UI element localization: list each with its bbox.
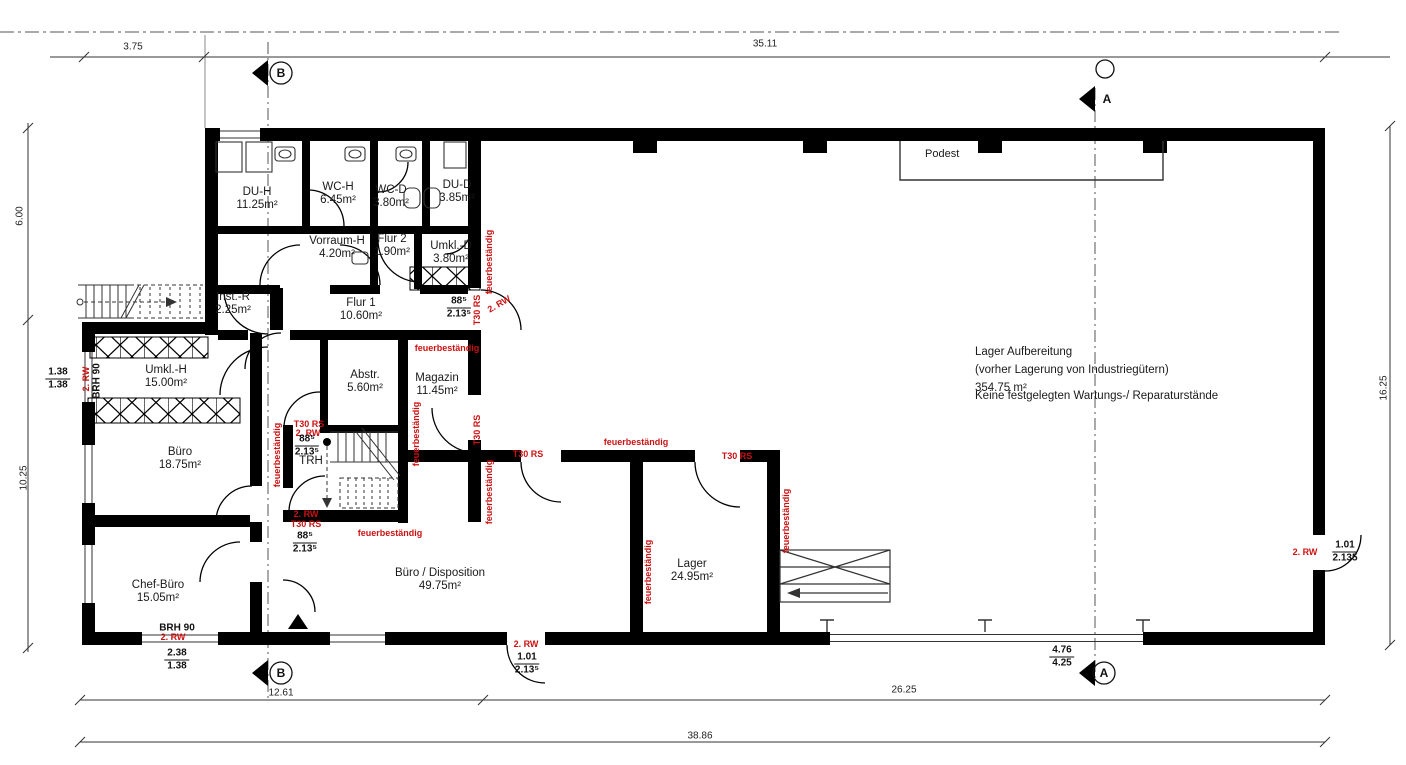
room-label-magazin: Magazin xyxy=(415,372,458,384)
dim-fraction-door-flur1: 88⁵2.13⁵ xyxy=(447,296,471,321)
room-label-flur-1: Flur 1 xyxy=(346,297,375,309)
room-label-du-h: DU-H xyxy=(243,186,272,198)
room-label-wc-h: WC-H xyxy=(322,181,353,193)
room-area-wc-d: 3.80m² xyxy=(373,197,409,209)
podest-outline xyxy=(900,141,1163,180)
floor-plan: Lager Aufbereitung (vorher Lagerung von … xyxy=(0,0,1406,765)
annotation-feuerbest-ndig: feuerbeständig xyxy=(781,489,791,554)
exterior-stair xyxy=(77,285,203,318)
label-brh-90: BRH 90 xyxy=(92,363,103,399)
annotation-feuerbest-ndig: feuerbeständig xyxy=(604,437,669,447)
annotation-feuerbest-ndig: feuerbeständig xyxy=(484,230,494,295)
room-area-b-ro-disposition: 49.75m² xyxy=(419,580,461,592)
room-label-wc-d: WC-D xyxy=(375,184,406,196)
room-area-lager: 24.95m² xyxy=(671,571,713,583)
annotation-feuerbest-ndig: feuerbeständig xyxy=(358,528,423,538)
annotation-2-rw: 2. RW xyxy=(1293,547,1318,557)
room-label-abstr: Abstr. xyxy=(350,369,379,381)
room-area-du-h: 11.25m² xyxy=(236,199,277,211)
room-area-flur-2: 1.90m² xyxy=(374,246,410,258)
room-area-b-ro: 18.75m² xyxy=(159,459,201,471)
room-area-flur-1: 10.60m² xyxy=(340,310,382,322)
podest-label: Podest xyxy=(925,148,959,160)
dim-fraction-dim-window-left: 1.381.38 xyxy=(45,367,70,392)
ramp xyxy=(780,550,890,602)
dimension-6-00: 6.00 xyxy=(15,206,26,225)
dim-fraction-door-entrance: 1.012.13⁵ xyxy=(514,652,539,677)
annotation-t30-rs: T30 RS xyxy=(722,451,753,461)
gate-posts xyxy=(820,620,1150,632)
label-brh-90: BRH 90 xyxy=(159,623,195,634)
room-label-du-d: DU-D xyxy=(443,179,472,191)
room-label-inst-r: Inst.-R xyxy=(216,291,250,303)
annotation-feuerbest-ndig: feuerbeständig xyxy=(484,460,494,525)
floorplan-drawing xyxy=(0,0,1406,765)
dimension-38-86: 38.86 xyxy=(687,731,712,742)
room-label-lager: Lager xyxy=(677,558,706,570)
dim-fraction-door-trh-top: 88⁵2.13⁵ xyxy=(295,434,319,459)
room-label-b-ro-disposition: Büro / Disposition xyxy=(395,567,485,579)
dimension-10-25: 10.25 xyxy=(19,465,30,490)
section-letter-b-top: B xyxy=(277,66,286,80)
room-area-wc-h: 6.45m² xyxy=(320,194,356,206)
annotation-feuerbest-ndig: feuerbeständig xyxy=(411,402,421,467)
annotation-t30-rs: T30 RS xyxy=(513,449,544,459)
room-area-du-d: 3.85m² xyxy=(439,192,475,204)
room-label-b-ro: Büro xyxy=(168,446,192,458)
section-letter-a-top: A xyxy=(1103,92,1112,106)
room-label-vorraum-h: Vorraum-H xyxy=(309,235,365,247)
room-label-chef-b-ro: Chef-Büro xyxy=(132,579,184,591)
annotation-t30-rs: T30 RS xyxy=(472,415,482,446)
section-letter-b-bottom: B xyxy=(277,666,286,680)
hall-note: Keine festgelegten Wartungs-/ Reparaturs… xyxy=(975,390,1218,402)
dimension-26-25: 26.25 xyxy=(891,685,916,696)
dim-fraction-door-trh-bottom: 88⁵2.13⁵ xyxy=(293,531,317,556)
room-label-umkl-h: Umkl.-H xyxy=(145,364,187,376)
room-area-magazin: 11.45m² xyxy=(416,385,457,397)
annotation-t30-rs: T30 RS xyxy=(472,295,482,326)
dimension-35-11: 35.11 xyxy=(753,39,777,50)
room-label-umkl-d: Umkl.-D xyxy=(430,240,472,252)
room-area-chef-b-ro: 15.05m² xyxy=(137,592,179,604)
trh-stair xyxy=(322,428,400,508)
annotation-feuerbest-ndig: feuerbeständig xyxy=(272,423,282,488)
annotation-feuerbest-ndig: feuerbeständig xyxy=(415,343,480,353)
room-label-flur-2: Flur 2 xyxy=(377,233,406,245)
section-letter-a-bottom: A xyxy=(1100,666,1109,680)
dimension-3-75: 3.75 xyxy=(123,42,142,53)
dimension-16-25: 16.25 xyxy=(1379,375,1390,400)
annotation-2-rw: 2. RW xyxy=(81,367,91,392)
dim-fraction-dim-window-chef: 2.381.38 xyxy=(164,648,189,673)
annotation-2-rw: 2. RW xyxy=(161,632,186,642)
room-area-umkl-d: 3.80m² xyxy=(433,253,469,265)
dim-fraction-gate-opening: 4.764.25 xyxy=(1049,645,1074,670)
hall-label-line1: Lager Aufbereitung xyxy=(975,344,1169,362)
annotation-2-rw: 2. RW xyxy=(294,509,319,519)
dimension-12-61: 12.61 xyxy=(268,688,293,699)
room-area-inst-r: 2.25m² xyxy=(215,304,251,316)
room-area-abstr: 5.60m² xyxy=(347,382,383,394)
hall-label-line2: (vorher Lagerung von Industriegütern) xyxy=(975,362,1169,380)
room-area-vorraum-h: 4.20m² xyxy=(319,248,355,260)
dim-fraction-door-east: 1.012.135 xyxy=(1332,540,1357,565)
room-area-umkl-h: 15.00m² xyxy=(145,377,187,389)
annotation-feuerbest-ndig: feuerbeständig xyxy=(643,540,653,605)
annotation-2-rw: 2. RW xyxy=(514,639,539,649)
annotation-t30-rs: T30 RS xyxy=(291,519,322,529)
